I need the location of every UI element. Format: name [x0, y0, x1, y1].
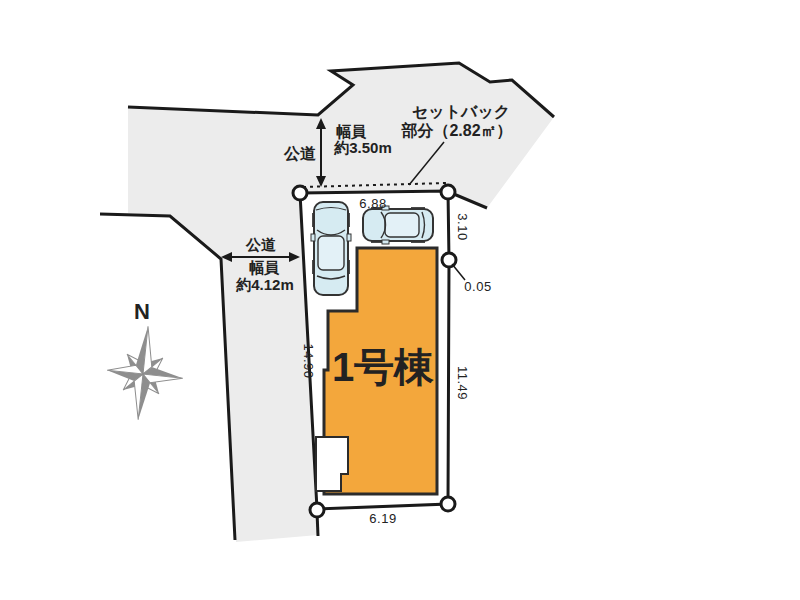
setback-label-line1: セットバック [412, 103, 510, 120]
road-top-width-label: 幅員 [336, 123, 367, 140]
dim-top: 6.88 [359, 196, 386, 211]
dim-right-upper: 3.10 [455, 213, 470, 240]
road-top-width-value: 約3.50m [333, 139, 392, 156]
north-label: N [134, 299, 150, 324]
road-left-width-value: 約4.12m [235, 276, 294, 293]
car-icon [311, 202, 351, 295]
dim-bottom: 6.19 [369, 511, 396, 526]
dim-left: 14.90 [301, 343, 316, 378]
dim-right-lower: 11.49 [455, 366, 470, 400]
building-label: 1号棟 [332, 345, 434, 389]
site-plan-drawing: N セットバック 部分（2.82㎡） 公道 幅員 約3.50m 公道 幅員 約4… [0, 0, 800, 600]
site-plan-page: N セットバック 部分（2.82㎡） 公道 幅員 約3.50m 公道 幅員 約4… [0, 0, 800, 600]
road-left-width-label: 幅員 [249, 259, 280, 276]
car-icon [363, 206, 433, 244]
road-top-label: 公道 [283, 145, 317, 162]
setback-label-line2: 部分（2.82㎡） [400, 121, 512, 140]
road-left-label: 公道 [245, 236, 277, 253]
dim-right-offset: 0.05 [464, 279, 491, 294]
